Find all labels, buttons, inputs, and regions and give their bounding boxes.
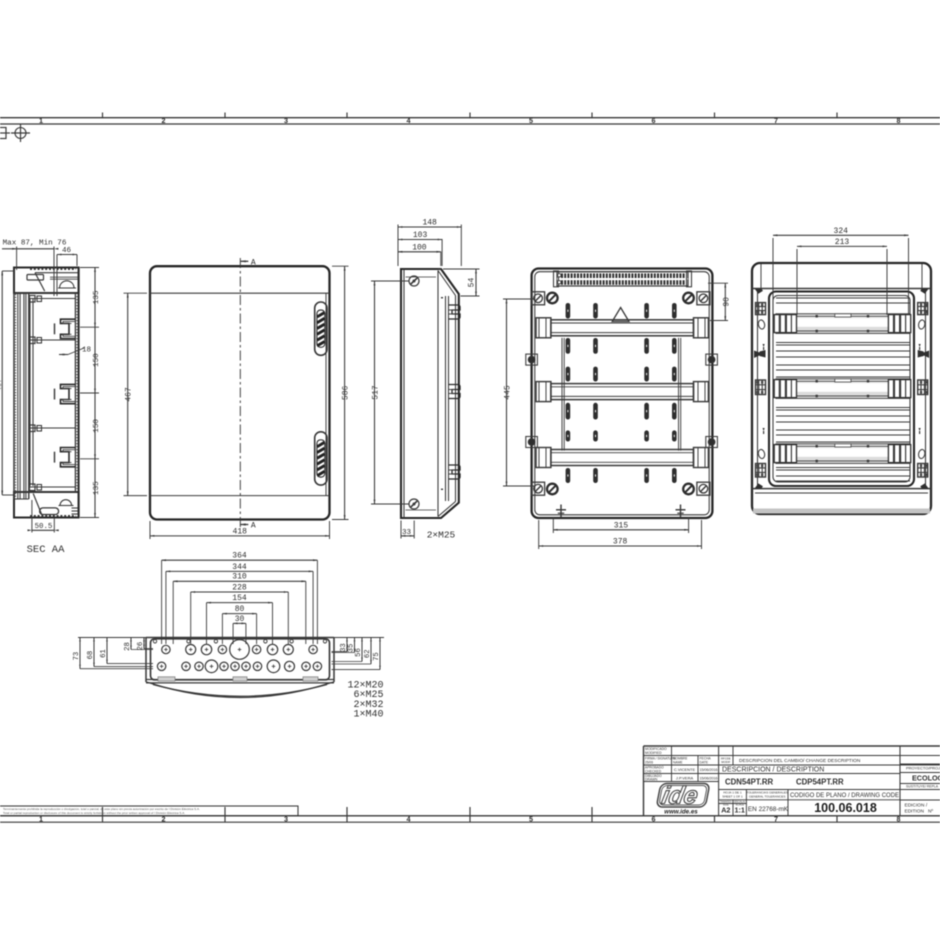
svg-text:135: 135 bbox=[93, 481, 101, 495]
svg-text:56: 56 bbox=[355, 648, 363, 657]
svg-text:CHECKED: CHECKED bbox=[645, 769, 662, 773]
svg-text:2: 2 bbox=[162, 116, 166, 125]
svg-text:ECOLOG: ECOLOG bbox=[912, 774, 940, 783]
svg-text:61: 61 bbox=[100, 649, 108, 658]
svg-text:586: 586 bbox=[342, 385, 351, 400]
svg-text:73: 73 bbox=[73, 652, 81, 661]
svg-text:CDP54PT.RR: CDP54PT.RR bbox=[796, 778, 844, 787]
svg-text:15/06/2016: 15/06/2016 bbox=[700, 768, 718, 772]
svg-text:103: 103 bbox=[413, 231, 428, 240]
svg-text:NAME: NAME bbox=[673, 761, 683, 765]
svg-text:4: 4 bbox=[407, 815, 411, 824]
svg-text:33: 33 bbox=[402, 529, 412, 537]
svg-text:50.5: 50.5 bbox=[35, 523, 53, 531]
svg-text:DESCRIPCION DEL CAMBIO/ CHANGE: DESCRIPCION DEL CAMBIO/ CHANGE DESCRIPTI… bbox=[739, 758, 861, 764]
svg-text:SEC AA: SEC AA bbox=[27, 544, 66, 556]
svg-text:GENERAL TOLERANCES: GENERAL TOLERANCES bbox=[749, 794, 785, 798]
svg-text:4: 4 bbox=[407, 116, 411, 125]
svg-text:MODIFIED: MODIFIED bbox=[645, 751, 662, 755]
svg-text:315: 315 bbox=[614, 521, 629, 530]
svg-text:54: 54 bbox=[467, 278, 476, 288]
svg-text:68: 68 bbox=[87, 651, 95, 660]
svg-text:CODIGO DE PLANO / DRAWING CODE: CODIGO DE PLANO / DRAWING CODE bbox=[790, 793, 899, 799]
svg-text:150: 150 bbox=[93, 353, 101, 367]
svg-text:ide: ide bbox=[660, 783, 701, 810]
svg-text:SHEET 1 OF 1: SHEET 1 OF 1 bbox=[722, 794, 743, 798]
svg-text:7: 7 bbox=[774, 815, 778, 824]
svg-text:467: 467 bbox=[125, 387, 134, 402]
svg-text:15/06/2016: 15/06/2016 bbox=[700, 776, 718, 780]
svg-text:310: 310 bbox=[232, 573, 247, 582]
svg-text:2×M25: 2×M25 bbox=[427, 530, 456, 541]
svg-text:26: 26 bbox=[137, 642, 145, 651]
svg-text:90: 90 bbox=[722, 297, 731, 307]
svg-text:CDN54PT.RR: CDN54PT.RR bbox=[725, 778, 773, 787]
svg-text:3: 3 bbox=[284, 116, 288, 125]
svg-text:A: A bbox=[251, 258, 256, 267]
svg-text:5: 5 bbox=[529, 116, 533, 125]
svg-text:A: A bbox=[251, 522, 256, 531]
svg-text:28: 28 bbox=[124, 642, 132, 651]
svg-text:418: 418 bbox=[233, 528, 248, 537]
svg-text:100: 100 bbox=[412, 243, 427, 252]
svg-text:228: 228 bbox=[232, 583, 247, 592]
svg-text:DESCRIPCION / DESCRIPTION: DESCRIPCION / DESCRIPTION bbox=[722, 767, 824, 774]
svg-text:J.P.VERA: J.P.VERA bbox=[676, 775, 694, 780]
svg-text:6: 6 bbox=[652, 815, 656, 824]
svg-text:445: 445 bbox=[504, 385, 513, 400]
svg-text:467: 467 bbox=[0, 379, 4, 392]
svg-text:1:1: 1:1 bbox=[735, 806, 745, 815]
svg-text:Max 87, Min 76: Max 87, Min 76 bbox=[3, 240, 67, 248]
svg-text:EDICION /: EDICION / bbox=[905, 803, 928, 809]
svg-text:135: 135 bbox=[93, 290, 101, 304]
svg-text:75: 75 bbox=[373, 652, 381, 661]
svg-text:148: 148 bbox=[422, 219, 437, 228]
svg-text:DRAWN: DRAWN bbox=[645, 778, 658, 782]
svg-text:EN 22768-mK: EN 22768-mK bbox=[748, 806, 789, 813]
svg-text:150: 150 bbox=[93, 419, 101, 433]
svg-text:30: 30 bbox=[235, 615, 245, 624]
svg-text:1: 1 bbox=[39, 116, 43, 125]
svg-text:25/06: 25/06 bbox=[645, 761, 653, 765]
svg-text:324: 324 bbox=[834, 227, 849, 236]
svg-text:8: 8 bbox=[897, 815, 901, 824]
svg-text:SUSTITUYE/ REPLA: SUSTITUYE/ REPLA bbox=[906, 784, 939, 788]
svg-text:EDITION Nº: EDITION Nº bbox=[905, 809, 934, 815]
svg-text:213: 213 bbox=[835, 238, 850, 247]
svg-text:A2: A2 bbox=[721, 806, 730, 815]
svg-text:62: 62 bbox=[364, 649, 372, 658]
svg-text:Total or partial reproduction: Total or partial reproduction or disclos… bbox=[3, 811, 185, 815]
svg-text:46: 46 bbox=[62, 247, 72, 255]
svg-text:DATE: DATE bbox=[700, 761, 709, 765]
svg-text:7: 7 bbox=[774, 116, 778, 125]
svg-text:www.ide.es: www.ide.es bbox=[664, 809, 698, 816]
svg-text:8: 8 bbox=[897, 116, 901, 125]
svg-text:MODIF: MODIF bbox=[721, 760, 730, 764]
svg-text:80: 80 bbox=[235, 605, 245, 614]
svg-text:364: 364 bbox=[232, 552, 247, 561]
svg-text:PROYECTO/PROJEC: PROYECTO/PROJEC bbox=[906, 766, 940, 771]
svg-text:100.06.018: 100.06.018 bbox=[814, 801, 877, 815]
svg-text:517: 517 bbox=[372, 385, 381, 400]
svg-text:5: 5 bbox=[529, 815, 533, 824]
svg-text:18: 18 bbox=[82, 347, 92, 355]
svg-text:6: 6 bbox=[652, 116, 656, 125]
svg-text:1×M40: 1×M40 bbox=[353, 710, 383, 721]
svg-text:154: 154 bbox=[232, 594, 247, 603]
svg-text:C.VICENTE: C.VICENTE bbox=[674, 767, 696, 772]
svg-text:378: 378 bbox=[613, 538, 628, 547]
svg-text:344: 344 bbox=[232, 563, 247, 572]
